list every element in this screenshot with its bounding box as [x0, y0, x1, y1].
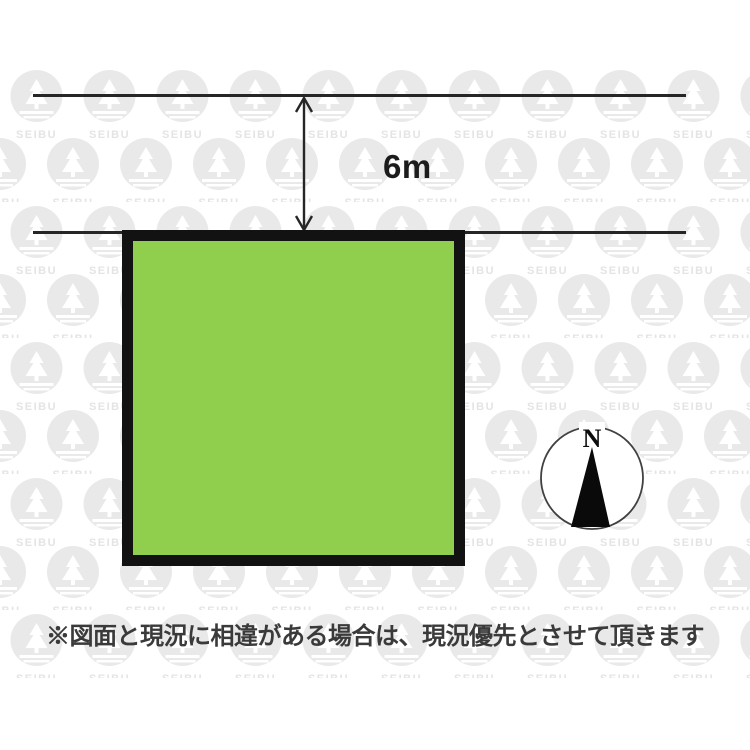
disclaimer-text: ※図面と現況に相違がある場合は、現況優先とさせて頂きます: [0, 616, 750, 651]
land-plot: [122, 230, 465, 566]
compass-north-label: N: [583, 424, 602, 453]
road-width-arrow-icon: [293, 95, 315, 233]
plot-diagram: SEIBU 6m N ※図面と現況に相違がある場合は、現況優先とさせて頂きます: [0, 0, 750, 750]
compass-icon: N: [536, 422, 648, 534]
road-upper-edge-line: [33, 94, 686, 97]
road-width-label: 6m: [383, 148, 432, 186]
